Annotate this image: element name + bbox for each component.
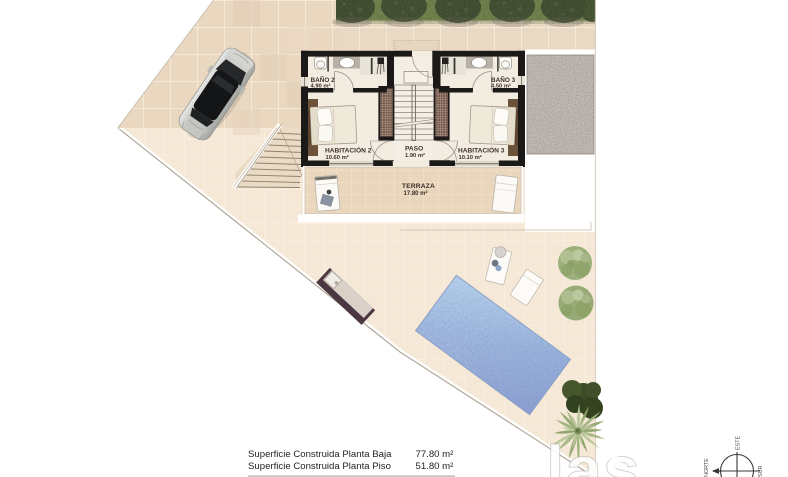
svg-text:HABITACIÓN 3: HABITACIÓN 3 [458, 146, 505, 155]
svg-text:BAÑO 3: BAÑO 3 [491, 75, 516, 84]
svg-text:las: las [546, 432, 641, 477]
svg-text:PASO: PASO [405, 146, 423, 153]
svg-text:4.90 m²: 4.90 m² [311, 83, 331, 90]
svg-text:HABITACIÓN 2: HABITACIÓN 2 [325, 146, 372, 155]
svg-text:17.80 m²: 17.80 m² [404, 190, 428, 197]
svg-text:10.10 m²: 10.10 m² [459, 154, 482, 161]
svg-text:NORTE: NORTE [704, 458, 710, 477]
svg-text:Superficie Construida Planta B: Superficie Construida Planta Baja [248, 449, 392, 460]
svg-text:TERRAZA: TERRAZA [402, 183, 435, 190]
svg-text:10.60 m²: 10.60 m² [326, 154, 349, 161]
svg-text:77.80 m²: 77.80 m² [416, 449, 455, 460]
svg-text:1.90 m²: 1.90 m² [405, 152, 425, 159]
svg-text:SUR: SUR [758, 466, 764, 477]
svg-text:Superficie Construida Planta P: Superficie Construida Planta Piso [248, 461, 391, 472]
svg-text:4.50 m²: 4.50 m² [491, 83, 511, 90]
svg-text:BAÑO 2: BAÑO 2 [311, 75, 336, 84]
svg-text:51.80 m²: 51.80 m² [416, 461, 455, 472]
svg-text:ESTE: ESTE [736, 436, 742, 450]
